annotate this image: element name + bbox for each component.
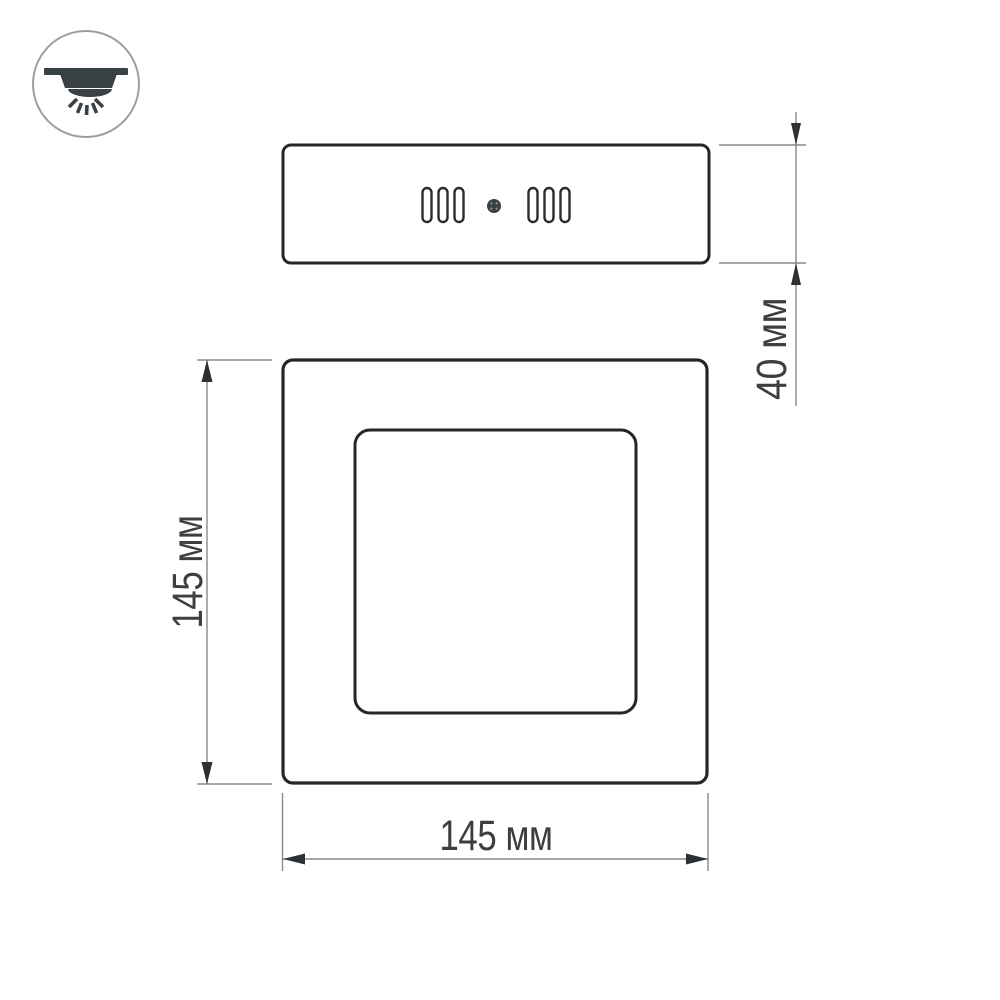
arrowhead-left [283, 854, 305, 865]
screw-head [487, 199, 501, 213]
vent-slot [529, 188, 538, 222]
vent-slot [423, 188, 432, 222]
drawing-svg: 40 мм 145 мм 145 мм [0, 0, 1000, 1000]
vent-slot [545, 188, 554, 222]
screw-detail-dot [490, 202, 492, 204]
side-view [283, 145, 709, 263]
technical-drawing-page: 40 мм 145 мм 145 мм [0, 0, 1000, 1000]
front-view-diffuser [355, 430, 636, 713]
width-dimension: 145 мм [283, 793, 709, 871]
screw-detail-dot [496, 208, 498, 210]
height-dimension-label: 145 мм [164, 516, 212, 629]
vent-slot [455, 188, 464, 222]
ceiling-downlight-icon [33, 31, 139, 137]
depth-dimension: 40 мм [719, 112, 806, 406]
icon-fixture-body [60, 74, 117, 88]
height-dimension: 145 мм [164, 360, 272, 784]
vent-slot [439, 188, 448, 222]
icon-ceiling-flange [44, 68, 128, 75]
arrowhead-down [202, 762, 213, 784]
vent-slots-left [423, 188, 464, 222]
vent-slot [561, 188, 570, 222]
vent-slots-right [529, 188, 570, 222]
depth-dimension-label: 40 мм [748, 298, 796, 400]
width-dimension-label: 145 мм [440, 812, 553, 860]
screw-detail-dot [496, 202, 498, 204]
arrowhead-up [791, 263, 801, 285]
screw-circle [487, 199, 501, 213]
arrowhead-right [686, 854, 708, 865]
arrowhead-up [202, 360, 213, 382]
screw-detail-dot [490, 208, 492, 210]
arrowhead-down [791, 123, 801, 145]
front-view [283, 360, 707, 783]
icon-ray-3 [87, 105, 88, 115]
